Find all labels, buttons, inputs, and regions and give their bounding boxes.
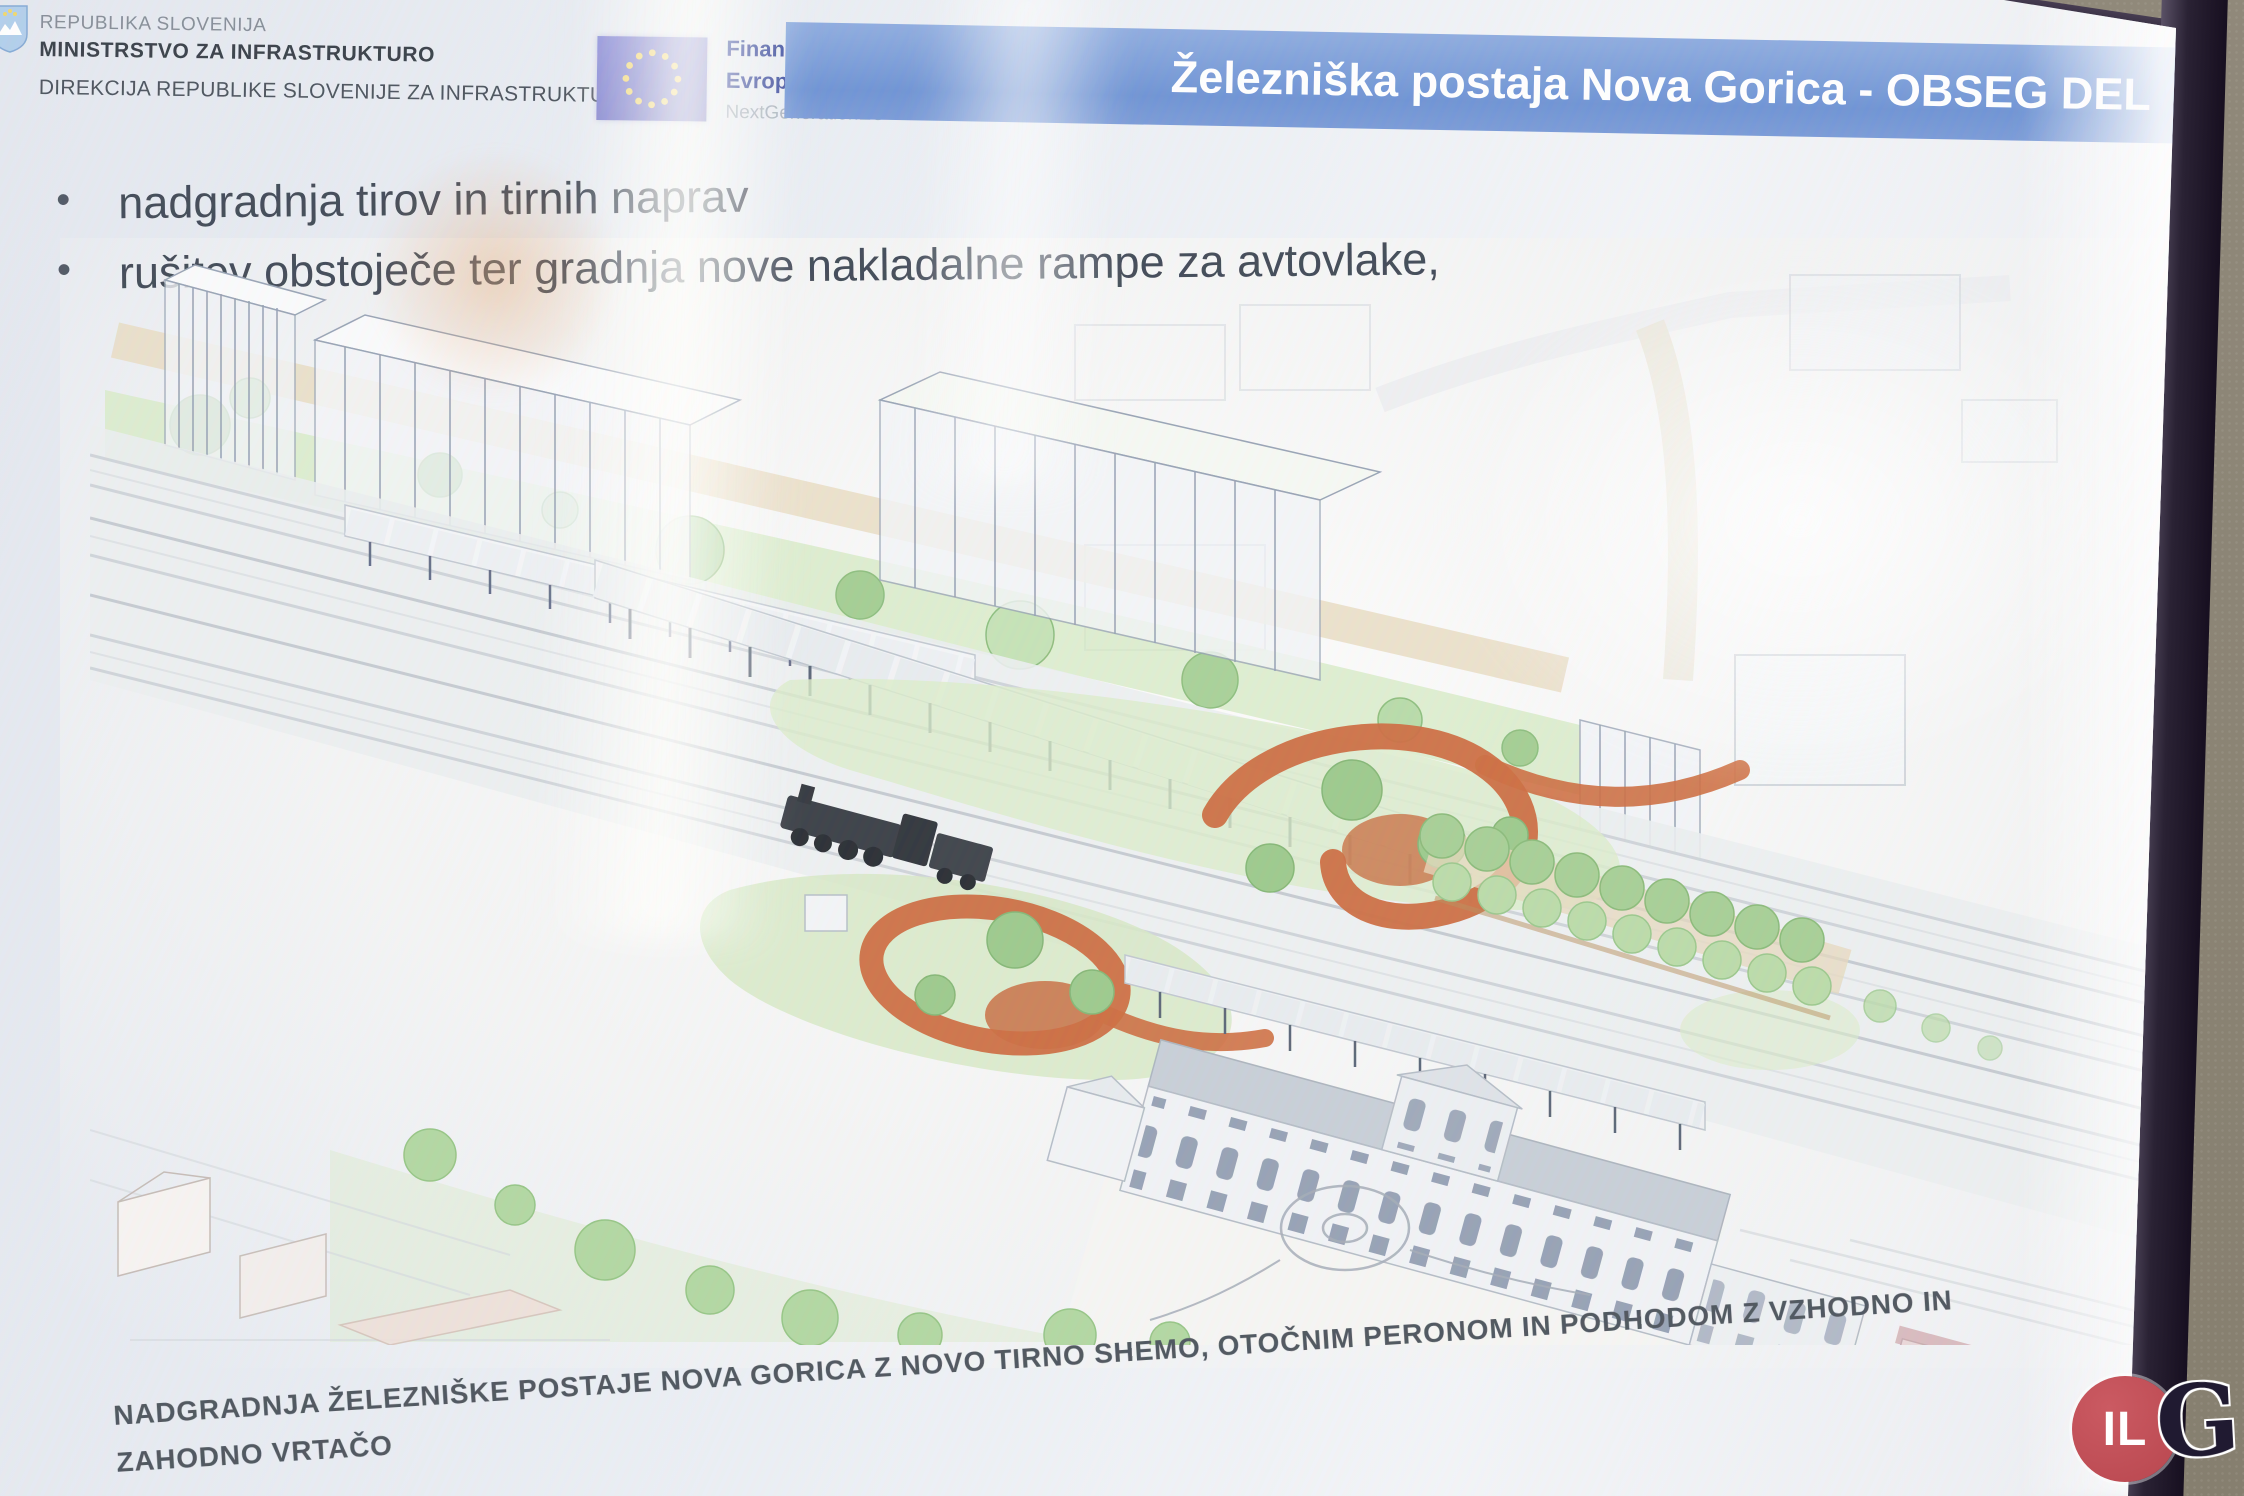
bullet-text: nadgradnja tirov in tirnih naprav — [118, 171, 749, 229]
bottom-left-context — [90, 1129, 1190, 1345]
eu-flag-icon — [596, 36, 707, 122]
presentation-slide: REPUBLIKA SLOVENIJA MINISTRSTVO ZA INFRA… — [0, 0, 2244, 1496]
gov-line-republic: REPUBLIKA SLOVENIJA — [40, 12, 267, 37]
photo-of-display: REPUBLIKA SLOVENIJA MINISTRSTVO ZA INFRA… — [0, 0, 2244, 1496]
slide-title-banner: Železniška postaja Nova Gorica - OBSEG D… — [784, 22, 2216, 144]
slovenia-coat-of-arms-icon — [0, 4, 30, 59]
blackletter-g-watermark: G — [2153, 1362, 2243, 1481]
il-badge-label: IL — [2103, 1402, 2148, 1457]
slide-title: Železniška postaja Nova Gorica - OBSEG D… — [784, 22, 2216, 144]
station-site-render — [90, 250, 2180, 1345]
gov-line-ministry: MINISTRSTVO ZA INFRASTRUKTURO — [39, 38, 435, 68]
gov-line-directorate: DIREKCIJA REPUBLIKE SLOVENIJE ZA INFRAST… — [39, 76, 638, 108]
bullet-item: nadgradnja tirov in tirnih naprav — [44, 162, 1604, 230]
